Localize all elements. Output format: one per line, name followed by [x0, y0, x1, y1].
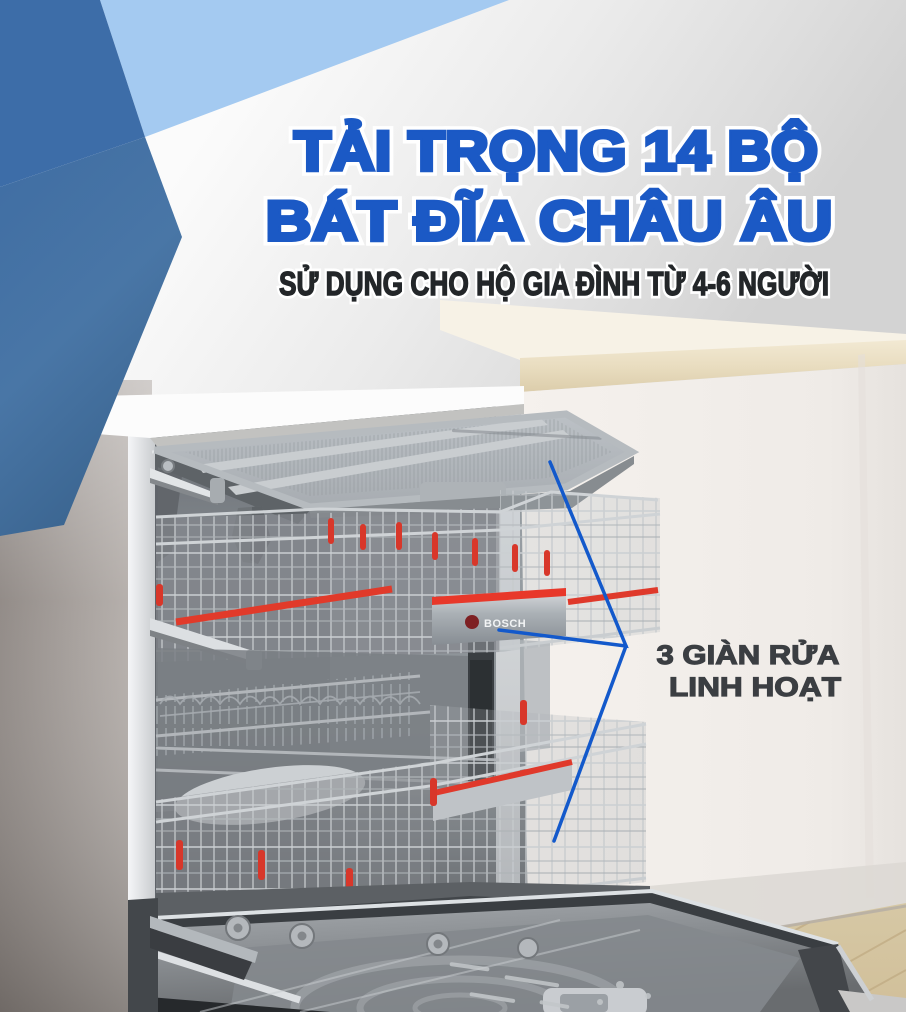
svg-text:BÁT ĐĨA CHÂU ÂU: BÁT ĐĨA CHÂU ÂU — [266, 189, 833, 252]
svg-text:LINH HOẠT: LINH HOẠT — [669, 672, 842, 702]
svg-text:BOSCH: BOSCH — [484, 618, 526, 630]
svg-text:TẢI TRỌNG 14 BỘ: TẢI TRỌNG 14 BỘ — [294, 119, 818, 182]
svg-text:3 GIÀN RỬA: 3 GIÀN RỬA — [657, 638, 840, 670]
svg-text:SỬ DỤNG CHO HỘ GIA ĐÌNH TỪ 4-6: SỬ DỤNG CHO HỘ GIA ĐÌNH TỪ 4-6 NGƯỜI — [279, 264, 829, 302]
